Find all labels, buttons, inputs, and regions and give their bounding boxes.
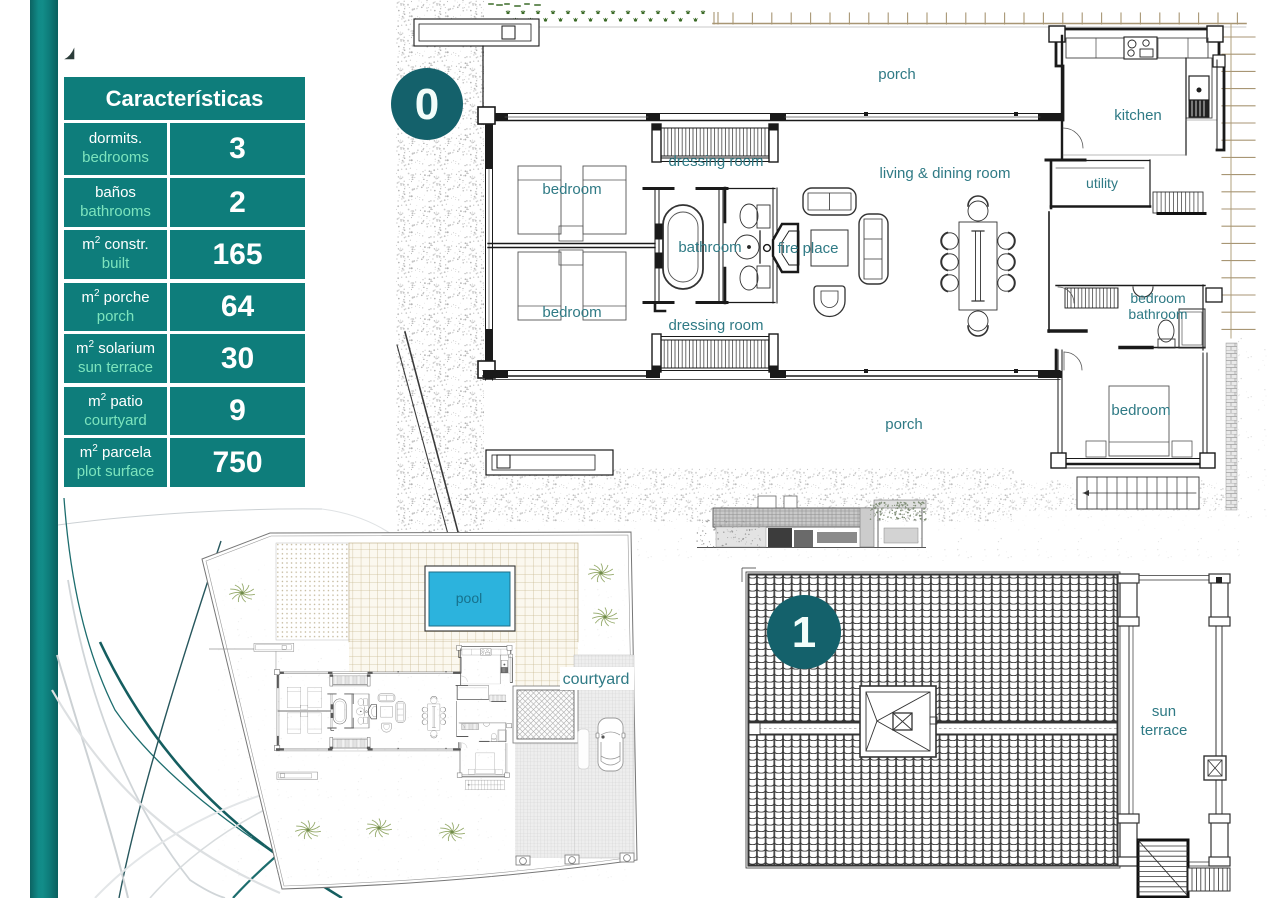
svg-text:bedroom: bedroom (1111, 402, 1170, 419)
svg-text:terrace: terrace (1141, 722, 1188, 739)
svg-text:0: 0 (415, 80, 439, 129)
svg-text:utility: utility (1086, 175, 1118, 191)
svg-text:courtyard: courtyard (563, 671, 630, 688)
svg-text:porch: porch (885, 416, 923, 433)
svg-text:porch: porch (878, 66, 916, 83)
svg-text:bedroom: bedroom (542, 304, 601, 321)
svg-text:pool: pool (456, 590, 482, 606)
svg-text:living & dining room: living & dining room (880, 165, 1011, 182)
svg-text:dressing room: dressing room (668, 153, 763, 170)
svg-text:1: 1 (792, 608, 816, 657)
svg-text:bedroom: bedroom (1130, 290, 1185, 306)
svg-text:dressing room: dressing room (668, 317, 763, 334)
svg-text:kitchen: kitchen (1114, 107, 1162, 124)
svg-text:bathroom: bathroom (1128, 306, 1187, 322)
svg-text:bedroom: bedroom (542, 181, 601, 198)
svg-text:fire place: fire place (778, 240, 839, 257)
svg-text:sun: sun (1152, 703, 1176, 720)
svg-text:bathroom: bathroom (678, 239, 741, 256)
